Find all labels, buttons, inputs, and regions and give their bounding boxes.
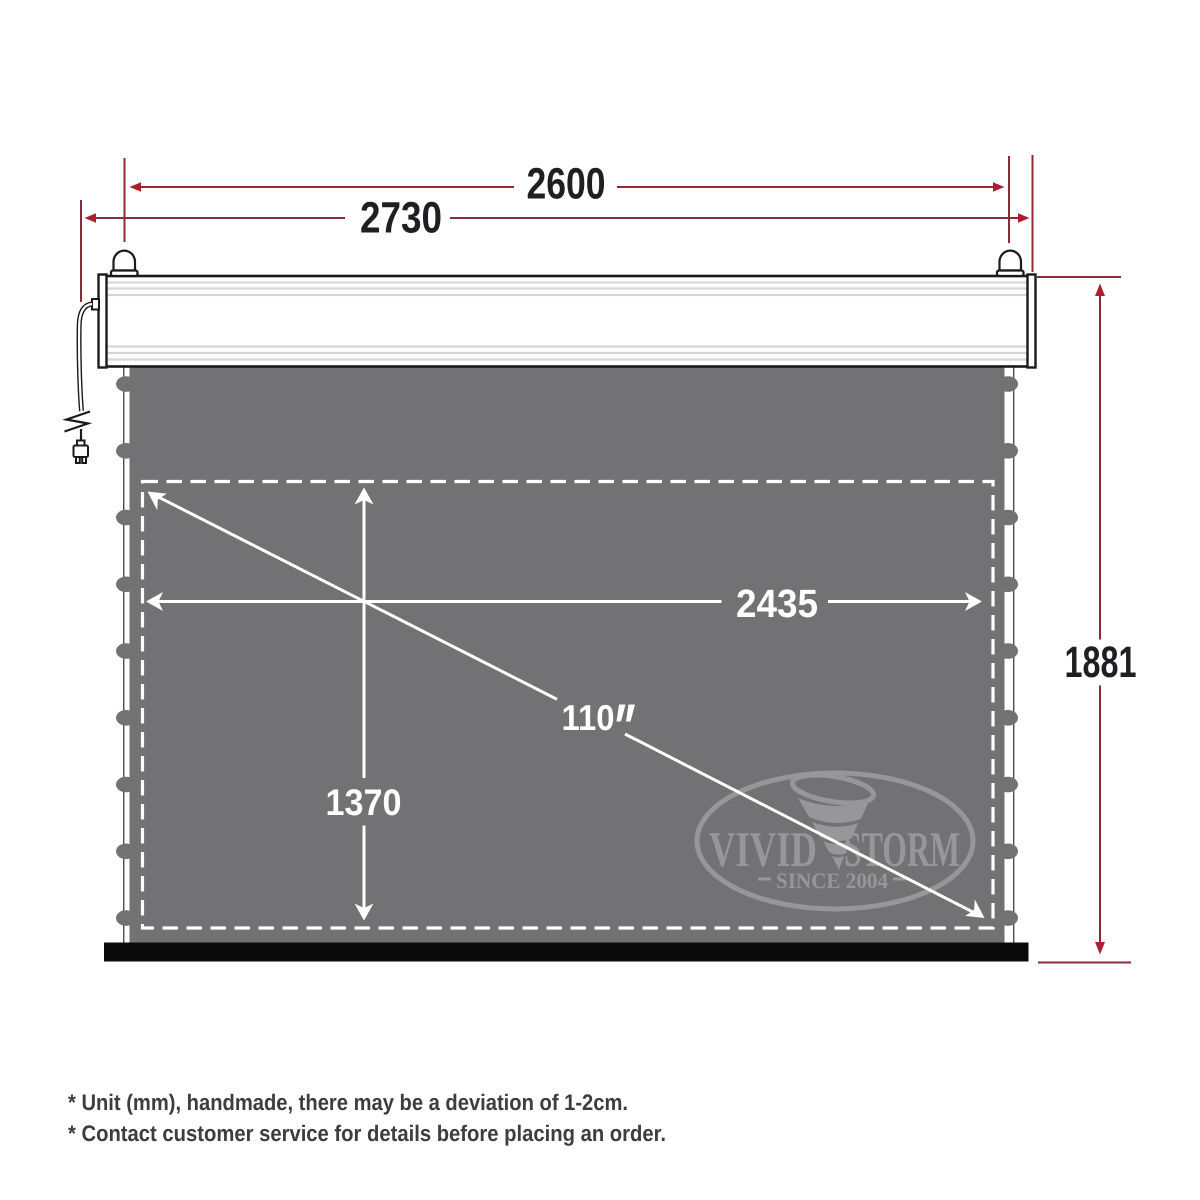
svg-text:1370: 1370: [326, 782, 402, 823]
svg-text:1881: 1881: [1065, 638, 1137, 687]
svg-text:2435: 2435: [736, 582, 818, 626]
svg-text:SINCE 2004: SINCE 2004: [776, 868, 888, 893]
svg-text:2730: 2730: [360, 194, 442, 243]
svg-text:2600: 2600: [527, 160, 606, 209]
svg-text:* Unit (mm), handmade, there m: * Unit (mm), handmade, there may be a de…: [68, 1090, 628, 1115]
svg-text:* Contact customer service for: * Contact customer service for details b…: [68, 1121, 666, 1146]
svg-text:110: 110: [562, 697, 615, 738]
